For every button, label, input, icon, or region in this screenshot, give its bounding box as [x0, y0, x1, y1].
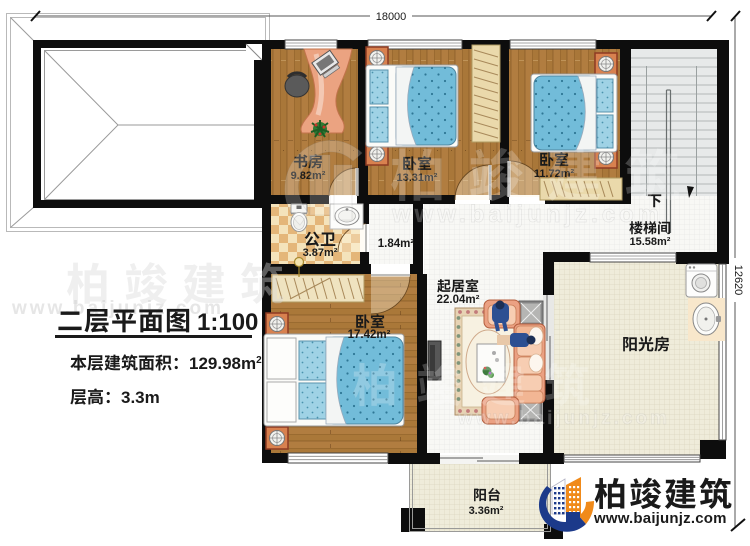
svg-text:3.87m²: 3.87m²	[303, 247, 338, 259]
svg-text:3.36m²: 3.36m²	[469, 505, 504, 517]
svg-text:www.baijunjz.com: www.baijunjz.com	[457, 408, 670, 429]
svg-text:www.baijunjz.com: www.baijunjz.com	[593, 510, 727, 527]
svg-text:12620: 12620	[732, 265, 744, 296]
svg-text:www.baijunjz.com: www.baijunjz.com	[391, 201, 663, 228]
svg-text:18000: 18000	[376, 11, 407, 23]
svg-text:3.3m: 3.3m	[121, 388, 160, 407]
svg-text:22.04m²: 22.04m²	[437, 294, 480, 306]
svg-text:15.58m²: 15.58m²	[630, 236, 671, 248]
svg-text:1:100: 1:100	[197, 309, 258, 336]
svg-text:1.84m²: 1.84m²	[378, 238, 415, 250]
svg-text:17.42m²: 17.42m²	[348, 329, 391, 341]
svg-text:129.98m2: 129.98m2	[189, 354, 262, 373]
